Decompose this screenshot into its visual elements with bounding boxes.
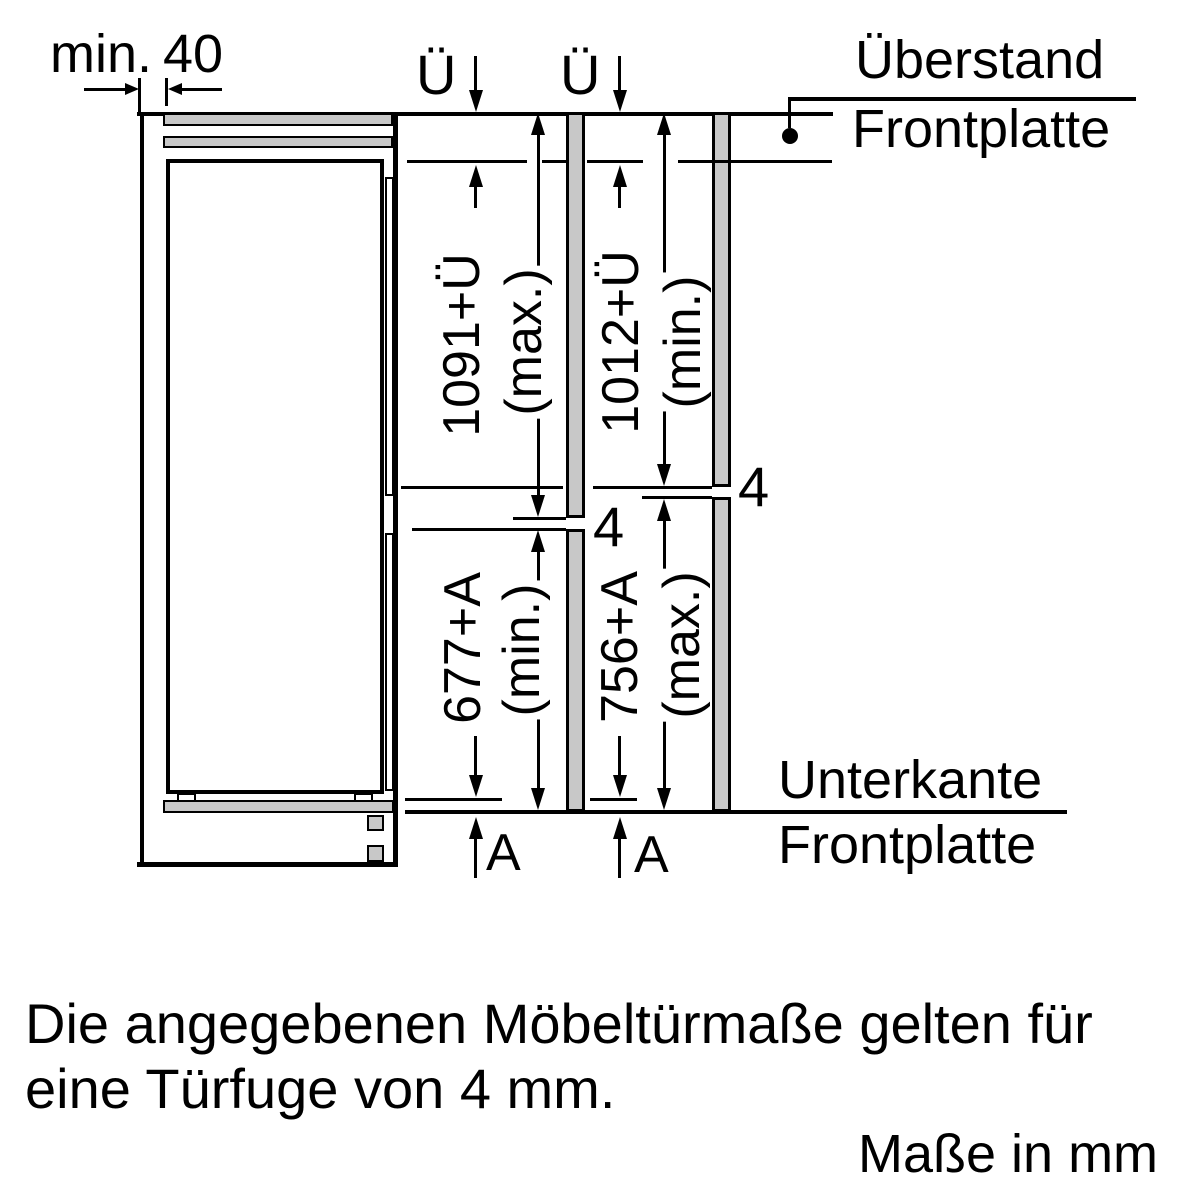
arrow-up-icon — [613, 165, 627, 187]
hinge-block-lower — [367, 845, 384, 862]
footnote-line2: eine Türfuge von 4 mm. — [25, 1060, 615, 1119]
arrow-down-icon — [613, 775, 627, 797]
a-left-arrow-tail-top — [474, 736, 477, 775]
arrow-down-icon — [531, 788, 545, 810]
arrow-down-icon — [613, 90, 627, 112]
overhang-leader-line — [788, 97, 791, 128]
arrow-down-icon — [469, 775, 483, 797]
cabinet-top-rail-rear — [163, 136, 393, 148]
appliance-top-extension-line — [542, 160, 568, 163]
arrow-up-icon — [657, 499, 671, 521]
a-left-arrow-tail-bottom — [474, 839, 477, 878]
frontpanel-bottom-edge-line — [405, 810, 1067, 814]
a-right-arrow-tail-top — [618, 736, 621, 775]
front-panel-right-upper — [712, 112, 731, 487]
arrow-left-icon — [168, 83, 182, 95]
gap-value-left: 4 — [593, 498, 624, 557]
min-clearance-arrow-line-left — [84, 88, 127, 91]
appliance-door-lower-edge — [385, 533, 394, 791]
appliance-door-upper-edge — [385, 177, 394, 496]
installation-diagram: min. 40 Überstand Frontplatte 4 4 Unterk… — [0, 0, 1200, 1200]
cabinet-bottom-extension-right — [590, 798, 637, 801]
footnote-line1: Die angegebenen Möbeltürmaße gelten für — [25, 995, 1093, 1054]
overhang-title: Überstand — [855, 32, 1104, 89]
arrow-up-icon — [531, 530, 545, 552]
front-panel-right-lower — [712, 497, 731, 812]
a-right-arrow-tail-bottom — [618, 839, 621, 878]
arrow-down-icon — [469, 90, 483, 112]
front-panel-left-upper — [566, 112, 585, 518]
dim-upper-left-qualifier: (max.) — [497, 265, 551, 418]
ue-left-arrow-tail — [474, 187, 477, 208]
front-panel-left-lower — [566, 529, 585, 812]
dim-lower-right-qualifier: (max.) — [655, 568, 709, 721]
dim-upper-left-value: 1091+Ü — [435, 250, 489, 440]
min-clearance-arrow-line-right — [182, 88, 222, 91]
arrow-up-icon — [613, 817, 627, 839]
overhang-subtitle: Frontplatte — [852, 101, 1110, 158]
dim-upper-right-value: 1012+Ü — [594, 247, 648, 437]
gap-left-top-line — [513, 517, 566, 520]
appliance-top-extension-line — [587, 160, 643, 163]
appliance-top-extension-line — [407, 160, 527, 163]
gap-value-right: 4 — [738, 458, 769, 517]
dim-lower-left-qualifier: (min.) — [495, 581, 549, 720]
overhang-symbol-left: Ü — [416, 46, 456, 105]
arrow-up-icon — [531, 113, 545, 135]
arrow-up-icon — [469, 817, 483, 839]
overhang-symbol-right: Ü — [560, 46, 600, 105]
arrow-up-icon — [469, 165, 483, 187]
bottom-edge-title: Unterkante — [778, 752, 1042, 809]
hinge-block-upper — [367, 815, 384, 831]
arrow-down-icon — [657, 788, 671, 810]
dim-lower-right-value: 756+A — [593, 568, 647, 726]
arrow-up-icon — [657, 113, 671, 135]
appliance-body — [166, 159, 384, 794]
arrow-right-icon — [125, 83, 139, 95]
min-clearance-value: 40 — [163, 26, 223, 83]
cabinet-top-rail-front — [163, 113, 393, 126]
gap-right-top-line — [593, 486, 712, 489]
ue-right-arrow-line — [618, 56, 621, 90]
overhang-leader-dot — [782, 128, 798, 144]
dim-upper-right-qualifier: (min.) — [656, 273, 710, 412]
offset-symbol-left: A — [486, 826, 521, 881]
arrow-down-icon — [531, 495, 545, 517]
offset-symbol-right: A — [634, 828, 669, 883]
dim-lower-left-value: 677+A — [436, 569, 490, 727]
ue-right-arrow-tail — [618, 187, 621, 208]
cabinet-left-wall — [140, 112, 144, 867]
min-clearance-prefix: min. — [50, 26, 152, 83]
cabinet-bottom-extension-left — [405, 798, 502, 801]
gap-right-bottom-line — [642, 496, 712, 499]
units-note: Maße in mm — [858, 1126, 1158, 1183]
appliance-top-extension-line — [678, 160, 832, 163]
bottom-edge-subtitle: Frontplatte — [778, 817, 1036, 874]
cabinet-bottom-line — [137, 862, 398, 867]
ue-left-arrow-line — [474, 56, 477, 90]
plinth-rail — [163, 800, 394, 813]
arrow-down-icon — [657, 464, 671, 486]
